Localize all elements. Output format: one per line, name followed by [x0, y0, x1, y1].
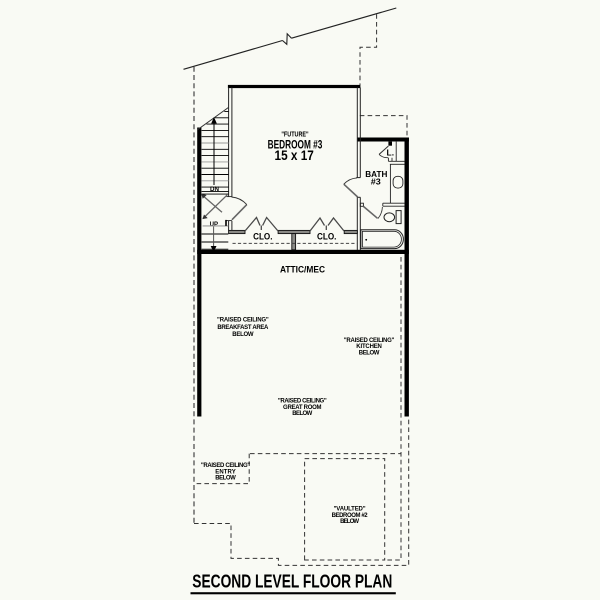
svg-text:BREAKFAST AREA: BREAKFAST AREA: [217, 325, 269, 331]
svg-text:CLO.: CLO.: [317, 231, 336, 242]
svg-text:SECOND LEVEL FLOOR PLAN: SECOND LEVEL FLOOR PLAN: [192, 571, 392, 592]
svg-text:"VAULTED": "VAULTED": [334, 507, 366, 513]
svg-text:#3: #3: [371, 177, 381, 187]
svg-text:KITCHEN: KITCHEN: [356, 344, 382, 350]
svg-text:BELOW: BELOW: [215, 475, 236, 481]
svg-text:"FUTURE": "FUTURE": [281, 132, 308, 139]
svg-text:"RAISED CEILING": "RAISED CEILING": [344, 338, 395, 344]
svg-text:15 x 17: 15 x 17: [275, 148, 315, 163]
svg-text:L.: L.: [387, 147, 395, 157]
svg-text:ATTIC/MEC: ATTIC/MEC: [280, 265, 325, 276]
svg-text:UP: UP: [210, 221, 219, 228]
svg-text:BELOW: BELOW: [359, 350, 380, 356]
svg-text:"RAISED CEILING": "RAISED CEILING": [278, 399, 327, 405]
svg-text:BELOW: BELOW: [340, 519, 359, 525]
svg-text:BELOW: BELOW: [232, 332, 254, 338]
svg-text:CLO.: CLO.: [253, 231, 272, 242]
svg-text:DN: DN: [210, 186, 219, 193]
svg-text:"RAISED CEILING": "RAISED CEILING": [217, 317, 269, 323]
svg-text:"RAISED CEILING": "RAISED CEILING": [201, 463, 250, 469]
svg-text:BELOW: BELOW: [292, 411, 312, 417]
